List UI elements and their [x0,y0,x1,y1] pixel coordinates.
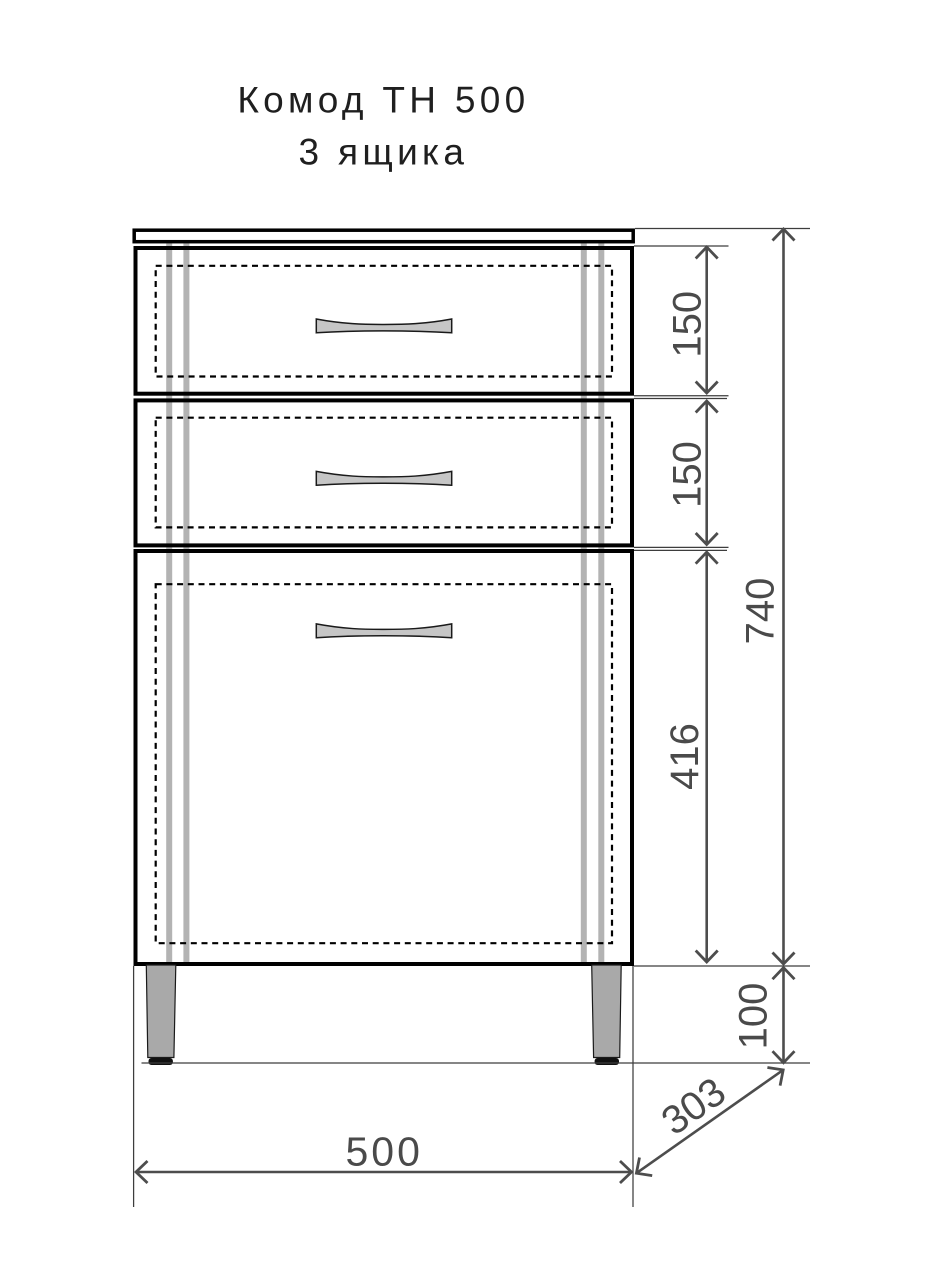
svg-text:416: 416 [663,723,707,790]
svg-text:500: 500 [345,1129,422,1175]
svg-text:150: 150 [666,441,710,508]
svg-text:Комод ТН 500: Комод ТН 500 [237,80,529,121]
svg-text:150: 150 [666,291,710,358]
svg-text:740: 740 [739,578,783,645]
svg-text:100: 100 [732,983,776,1050]
svg-text:3 ящика: 3 ящика [299,132,469,173]
